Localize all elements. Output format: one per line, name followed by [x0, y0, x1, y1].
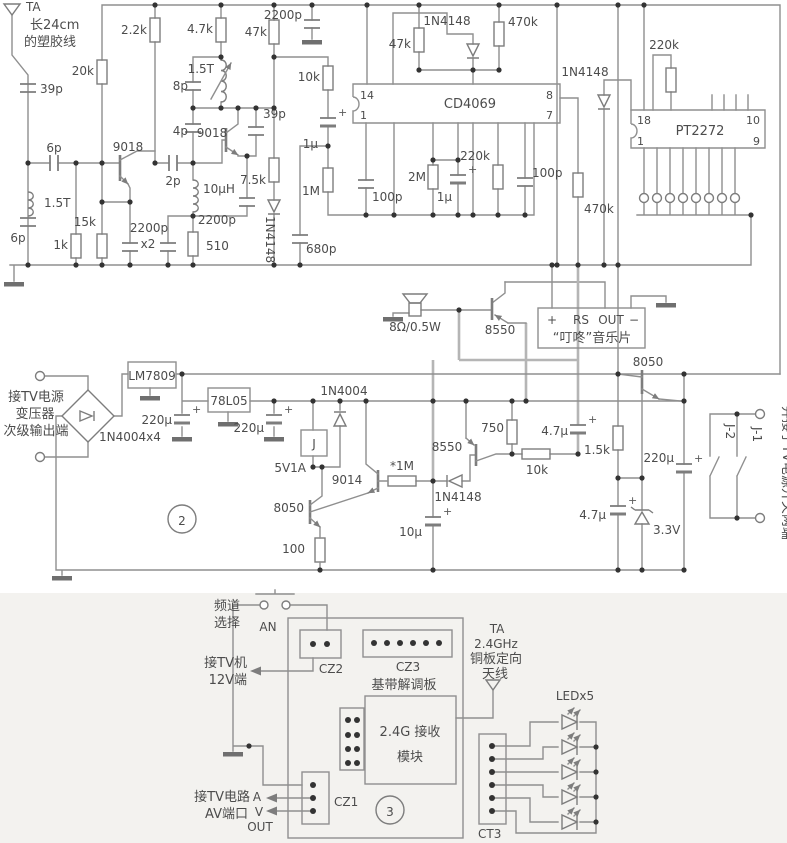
label-mod2: 模块	[397, 750, 423, 765]
label-l15t-b: 1.5T	[188, 62, 215, 76]
label-c1u-b: 1µ	[437, 190, 453, 204]
label-r1k5: 1.5k	[584, 443, 610, 457]
input-terminal	[36, 453, 45, 462]
label-c220u-a: 220µ	[141, 413, 172, 427]
label-r510: 510	[206, 239, 229, 253]
label-src2: 变压器	[15, 406, 54, 422]
label-d3: 1N4148	[561, 65, 608, 79]
label-q8550-b: 8550	[432, 440, 463, 454]
label-c4u7-a: 4.7µ	[541, 424, 568, 438]
variable-coil-arrow	[211, 63, 231, 99]
label-ct3: CT3	[478, 827, 501, 841]
label-r10k: 10k	[298, 70, 320, 84]
label-v5: 5V1A	[274, 461, 306, 475]
label-ch2: 选择	[214, 616, 240, 631]
label-speaker: 8Ω/0.5W	[389, 320, 441, 334]
plus-mark: +	[192, 403, 201, 416]
label-q8050-a: 8050	[633, 355, 664, 369]
label-board: 基带解调板	[371, 678, 436, 693]
button-an-contact[interactable]	[282, 601, 290, 609]
label-c10u: 10µ	[399, 525, 422, 539]
label-l15t-a: 1.5T	[44, 196, 71, 210]
button-an-contact[interactable]	[260, 601, 268, 609]
label-ant3: 铜板定向	[470, 651, 522, 667]
zener-3v3	[631, 507, 653, 524]
diode-1n4148	[447, 475, 462, 487]
section-2-power: 接TV电源 变压器 次级输出端 1N4004x4 LM7809 220µ 78L…	[3, 362, 787, 581]
label-av1: 接TV电路	[194, 789, 250, 805]
label-ant2: 的塑胶线	[24, 34, 76, 50]
label-c2200p-c: 2200p	[198, 213, 236, 227]
label-c4u7-b: 4.7µ	[579, 508, 606, 522]
label-a: A	[253, 790, 262, 804]
label-src3: 次级输出端	[3, 423, 68, 439]
label-r2k2: 2.2k	[121, 23, 147, 37]
pin-14: 14	[360, 89, 374, 102]
pin-10: 10	[746, 114, 760, 127]
pt2272-address-pins	[640, 194, 740, 203]
switch-terminal	[756, 514, 765, 523]
schematic-canvas: TA 长24cm 的塑胶线 39p 20k 2.2k 4.7k 47k 2200…	[0, 0, 787, 843]
label-d4: 1N4004	[320, 384, 367, 398]
label-c8p: 8p	[173, 79, 188, 93]
label-r2m: 2M	[408, 170, 426, 184]
label-c4p: 4p	[173, 124, 188, 138]
label-cz2: CZ2	[319, 662, 343, 676]
label-r20k: 20k	[72, 64, 94, 78]
label-c220u-c: 220µ	[643, 451, 674, 465]
label-right-note: 并接于TV电源开关两端	[779, 406, 787, 540]
label-v: V	[255, 805, 264, 819]
label-r470k-a: 470k	[508, 15, 538, 29]
music-pin-out: OUT	[598, 313, 624, 327]
label-c2200p-top: 2200p	[264, 8, 302, 22]
pin-7: 7	[546, 109, 553, 122]
label-q9014: 9014	[332, 473, 363, 487]
label-cz1: CZ1	[334, 795, 358, 809]
label-c100p-a: 100p	[372, 190, 403, 204]
label-bridge: 1N4004x4	[99, 430, 161, 444]
label-q8050-b: 8050	[273, 501, 304, 515]
label-r220k-a: 220k	[460, 149, 490, 163]
label-tv2: 12V端	[209, 673, 247, 688]
label-r1m: 1M	[302, 184, 320, 198]
label-an: AN	[259, 620, 276, 634]
label-d5: 1N4148	[434, 490, 481, 504]
section-2-number: 2	[178, 514, 186, 528]
label-l10uh: 10µH	[203, 182, 235, 196]
label-r220k-b: 220k	[649, 38, 679, 52]
label-av2: AV端口	[205, 807, 248, 822]
label-c6p-a: 6p	[46, 141, 61, 155]
music-pin-minus: −	[629, 313, 639, 327]
pin-8: 8	[546, 89, 553, 102]
label-ant4: 天线	[482, 667, 508, 682]
antenna-icon	[4, 4, 20, 15]
section-3-number: 3	[386, 805, 394, 819]
label-c2200p-x2a: 2200p	[130, 221, 168, 235]
label-mod1: 2.4G 接收	[380, 724, 441, 740]
label-d2: 1N4148	[423, 14, 470, 28]
label-r47k-b: 47k	[389, 37, 411, 51]
label-music-chip: “叮咚”音乐片	[553, 330, 631, 346]
plus-mark: +	[588, 413, 597, 426]
label-src1: 接TV电源	[8, 389, 64, 405]
label-ta2: TA	[489, 622, 505, 636]
input-terminal	[36, 372, 45, 381]
label-r100: 100	[282, 542, 305, 556]
label-q8550-a: 8550	[485, 323, 516, 337]
label-ic-cd4069: CD4069	[444, 97, 496, 112]
label-r750: 750	[481, 421, 504, 435]
label-c1u-a: 1µ	[303, 137, 319, 151]
plus-mark: +	[443, 505, 452, 518]
label-c6p-b: 6p	[10, 231, 25, 245]
diode-1n4004	[334, 412, 346, 426]
plus-mark: +	[284, 403, 293, 416]
label-reg2: 78L05	[210, 394, 247, 408]
label-c2200p-x2b: x2	[141, 237, 156, 251]
label-j2: J-2	[723, 423, 737, 439]
label-c220u-b: 220µ	[233, 421, 264, 435]
label-ant1: 长24cm	[30, 18, 79, 33]
label-r7k5: 7.5k	[240, 173, 266, 187]
label-c2p: 2p	[165, 174, 180, 188]
plus-mark: +	[468, 163, 477, 176]
label-r470k-b: 470k	[584, 202, 614, 216]
label-r15k: 15k	[74, 215, 96, 229]
label-out: OUT	[247, 820, 273, 834]
label-j1: J-1	[750, 426, 764, 442]
label-relay: J	[311, 437, 316, 451]
label-ghz: 2.4GHz	[474, 637, 518, 651]
label-r1m-star: *1M	[390, 459, 414, 473]
label-ta: TA	[25, 0, 41, 14]
music-pin-rs: RS	[573, 313, 589, 327]
pin-9: 9	[753, 135, 760, 148]
pin-1: 1	[360, 109, 367, 122]
music-pin-plus: +	[547, 313, 557, 327]
label-c39p-a: 39p	[40, 82, 63, 96]
label-r10k-b: 10k	[526, 463, 548, 477]
label-ch1: 频道	[214, 599, 240, 614]
pin-18: 18	[637, 114, 651, 127]
label-ic-pt2272: PT2272	[676, 124, 725, 139]
label-cz3: CZ3	[396, 660, 420, 674]
label-tv1: 接TV机	[204, 655, 247, 671]
label-r4k7: 4.7k	[187, 22, 213, 36]
label-ledx5: LEDx5	[556, 689, 594, 703]
schematic-page: TA 长24cm 的塑胶线 39p 20k 2.2k 4.7k 47k 2200…	[0, 0, 787, 843]
label-z33: 3.3V	[653, 523, 681, 537]
label-c100p-b: 100p	[532, 166, 563, 180]
label-c680p: 680p	[306, 242, 337, 256]
label-q9018-b: 9018	[197, 126, 228, 140]
switch-terminal	[756, 410, 765, 419]
plus-mark: +	[628, 494, 637, 507]
label-reg1: LM7809	[128, 369, 176, 383]
pin-1b: 1	[637, 135, 644, 148]
label-d1: 1N4148	[263, 216, 277, 263]
label-r47k-a: 47k	[245, 25, 267, 39]
label-q9018-a: 9018	[113, 140, 144, 154]
plus-mark: +	[338, 106, 347, 119]
label-r1k: 1k	[53, 238, 68, 252]
plus-mark: +	[694, 452, 703, 465]
